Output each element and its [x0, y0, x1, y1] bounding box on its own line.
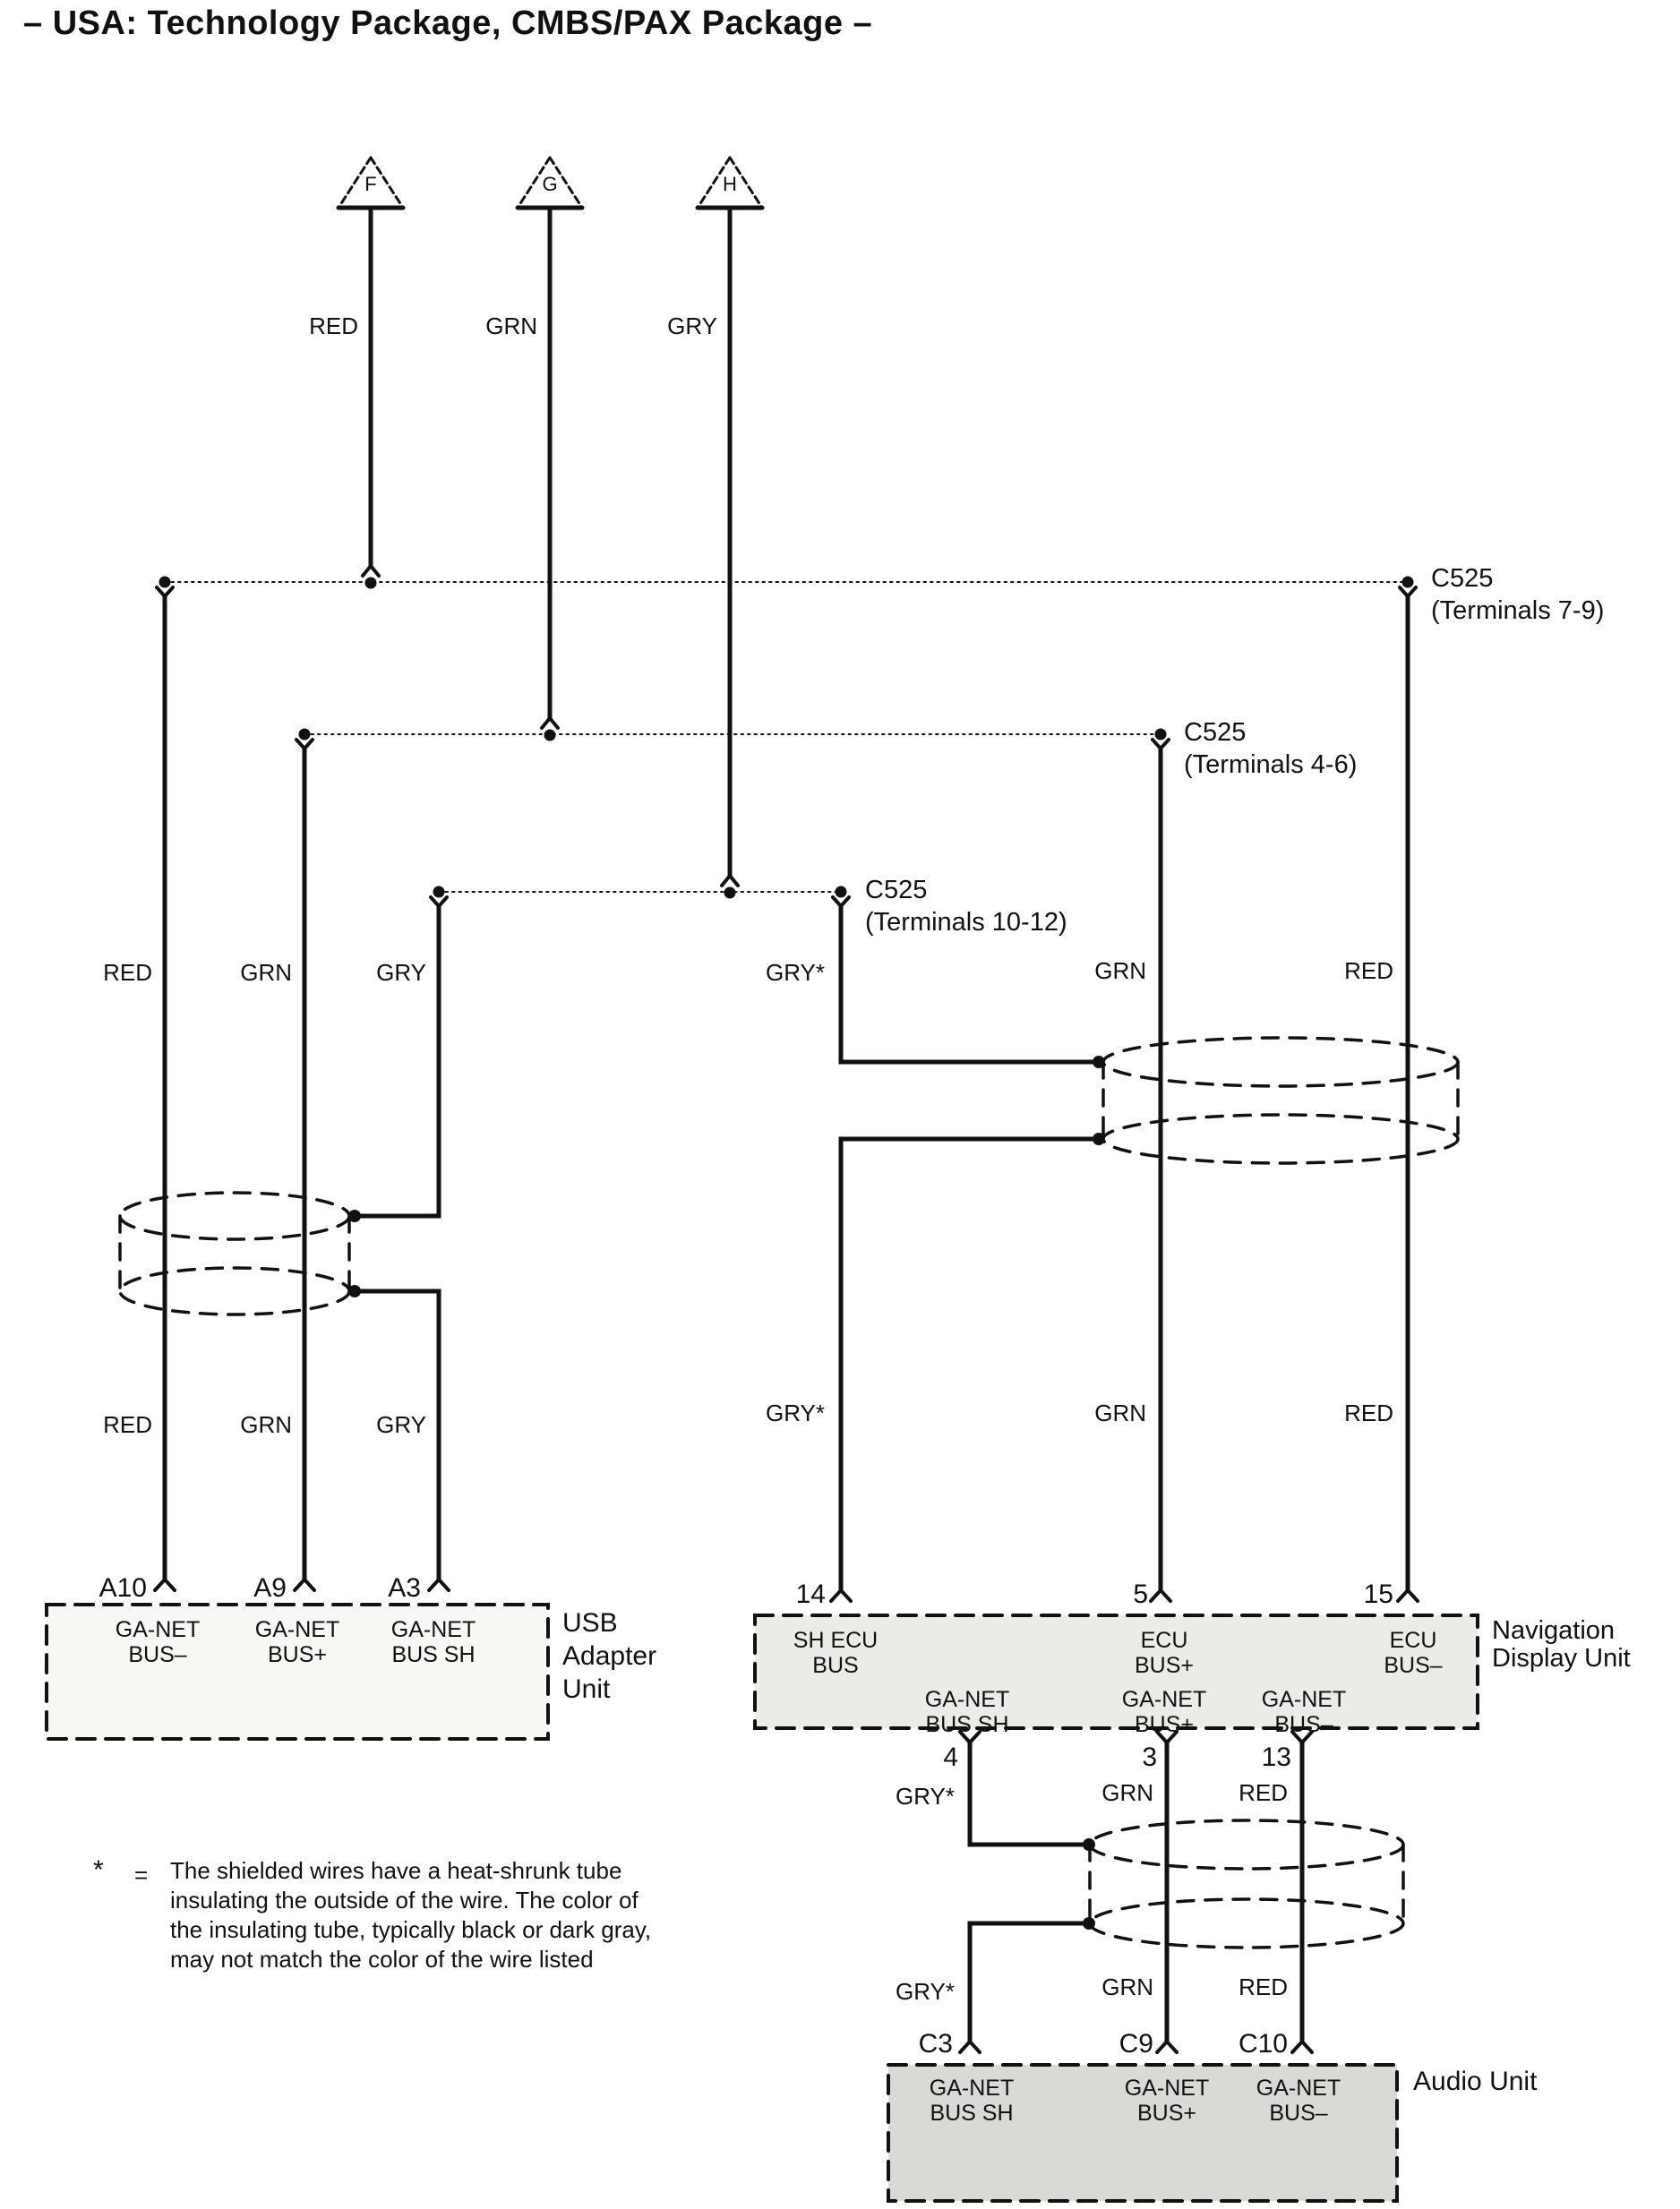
pin-function-line: GA-NET	[335, 1617, 532, 1642]
unit-name-line: Navigation	[1492, 1617, 1631, 1645]
footnote-text: The shielded wires have a heat-shrunk tu…	[170, 1856, 651, 1974]
wire-color-red-mid-1: RED	[1153, 1780, 1288, 1806]
wire-gry-star-right-shielded	[831, 897, 1096, 1601]
wire-color-gry-star-right-1: GRY*	[690, 960, 825, 986]
unit-name-line: Display Unit	[1492, 1645, 1631, 1673]
wire-color-gry-star-mid-2: GRY*	[820, 1979, 955, 2005]
footnote-equals: =	[134, 1862, 148, 1888]
connector-terminals: (Terminals 7-9)	[1431, 595, 1604, 627]
usb-pin-function-bus-sh: GA-NET BUS SH	[335, 1617, 532, 1667]
pin-function-line: ECU	[1066, 1628, 1263, 1653]
wire-color-top-red: RED	[224, 313, 358, 339]
wire-color-gry-left-2: GRY	[292, 1412, 426, 1438]
wire-color-grn-right-2: GRN	[1012, 1400, 1146, 1426]
nav-pin-function-ganet-bus-minus: GA-NET BUS–	[1205, 1687, 1402, 1737]
unit-name-line: Unit	[562, 1673, 656, 1706]
wire-color-grn-left-2: GRN	[158, 1412, 292, 1438]
pin-function-line: GA-NET	[1205, 1687, 1402, 1712]
pin-label-c9: C9	[1019, 2029, 1153, 2059]
nav-pin-function-ganet-bus-sh: GA-NET BUS SH	[869, 1687, 1066, 1737]
wire-red-right	[1398, 587, 1418, 1601]
wire-color-red-right-1: RED	[1259, 958, 1393, 984]
connector-name: C525	[1431, 562, 1604, 595]
triangle-label-g: G	[532, 174, 568, 195]
wire-color-top-grn: GRN	[403, 313, 537, 339]
connector-name: C525	[1184, 716, 1357, 749]
footnote-symbol: *	[93, 1855, 104, 1885]
page-title: – USA: Technology Package, CMBS/PAX Pack…	[23, 5, 872, 43]
wire-color-gry-star-right-2: GRY*	[690, 1400, 825, 1426]
shield-upper-right	[1103, 1038, 1458, 1163]
footnote-line: insulating the outside of the wire. The …	[170, 1886, 651, 1915]
wire-red-left	[155, 587, 175, 1590]
audio-pin-function-bus-minus: GA-NET BUS–	[1200, 2076, 1397, 2126]
wire-red-lower	[1292, 1732, 1312, 2052]
nav-pin-function-ecu-bus-plus: ECU BUS+	[1066, 1628, 1263, 1678]
nav-pin-function-ecu-bus-minus: ECU BUS–	[1315, 1628, 1512, 1678]
connector-name: C525	[865, 874, 1067, 906]
pin-function-line: BUS+	[1066, 1653, 1263, 1678]
wire-color-grn-mid-2: GRN	[1019, 1974, 1153, 2000]
footnote-line: the insulating tube, typically black or …	[170, 1915, 651, 1945]
nav-display-unit-name: Navigation Display Unit	[1492, 1617, 1631, 1673]
pin-label-4: 4	[824, 1742, 958, 1772]
pin-label-a10: A10	[13, 1573, 147, 1603]
pin-label-a9: A9	[152, 1573, 287, 1603]
pin-label-14: 14	[691, 1580, 826, 1609]
wire-color-grn-mid-1: GRN	[1019, 1780, 1153, 1806]
pin-label-c3: C3	[819, 2029, 953, 2059]
wire-f-red	[363, 208, 379, 576]
nav-pin-function-sh-ecu-bus: SH ECU BUS	[737, 1628, 934, 1678]
wire-color-red-left-2: RED	[18, 1412, 152, 1438]
pin-function-line: GA-NET	[1200, 2076, 1397, 2101]
wire-grn-right	[1151, 740, 1170, 1601]
pin-function-line: BUS SH	[869, 1712, 1066, 1737]
shield-lower	[1090, 1820, 1403, 1948]
audio-pin-function-bus-sh: GA-NET BUS SH	[873, 2076, 1070, 2126]
wire-color-red-mid-2: RED	[1153, 1974, 1288, 2000]
wire-h-gry	[722, 208, 738, 886]
pin-label-a3: A3	[287, 1573, 421, 1603]
wire-color-red-left-1: RED	[18, 960, 152, 986]
wire-color-grn-left-1: GRN	[158, 960, 292, 986]
unit-name-line: Adapter	[562, 1640, 656, 1673]
pin-function-line: BUS	[737, 1653, 934, 1678]
pin-label-13: 13	[1157, 1742, 1291, 1772]
wire-gry-left-shielded	[355, 897, 449, 1590]
connector-terminals: (Terminals 10-12)	[865, 906, 1067, 938]
triangle-label-h: H	[712, 174, 748, 195]
pin-function-line: SH ECU	[737, 1628, 934, 1653]
pin-function-line: ECU	[1315, 1628, 1512, 1653]
connector-label-c525-7-9: C525 (Terminals 7-9)	[1431, 562, 1604, 627]
pin-function-line: GA-NET	[869, 1687, 1066, 1712]
pin-function-line: GA-NET	[873, 2076, 1070, 2101]
wire-grn-left	[295, 740, 314, 1590]
shield-left	[120, 1193, 349, 1314]
pin-function-line: BUS SH	[873, 2101, 1070, 2126]
pin-label-3: 3	[1023, 1742, 1157, 1772]
footnote-line: The shielded wires have a heat-shrunk tu…	[170, 1856, 651, 1886]
pin-function-line: BUS SH	[335, 1642, 532, 1667]
unit-name-line: USB	[562, 1606, 656, 1640]
pin-label-5: 5	[1014, 1580, 1148, 1609]
pin-function-line: BUS–	[1315, 1653, 1512, 1678]
connector-terminals: (Terminals 4-6)	[1184, 749, 1357, 781]
wire-color-grn-right-1: GRN	[1012, 958, 1146, 984]
wire-color-top-gry: GRY	[583, 313, 717, 339]
pin-label-15: 15	[1259, 1580, 1393, 1609]
wiring-diagram-page: { "title": "– USA: Technology Package, C…	[0, 0, 1680, 2209]
wire-color-red-right-2: RED	[1259, 1400, 1393, 1426]
pin-label-c10: C10	[1153, 2029, 1288, 2059]
wire-g-grn	[542, 208, 558, 728]
pin-function-line: BUS–	[1200, 2101, 1397, 2126]
pin-function-line: BUS–	[1205, 1712, 1402, 1737]
wire-color-gry-star-mid-1: GRY*	[820, 1784, 955, 1810]
audio-unit-name: Audio Unit	[1413, 2065, 1537, 2098]
usb-adapter-unit-name: USB Adapter Unit	[562, 1606, 656, 1706]
connector-label-c525-4-6: C525 (Terminals 4-6)	[1184, 716, 1357, 781]
triangle-label-f: F	[353, 174, 389, 195]
connector-label-c525-10-12: C525 (Terminals 10-12)	[865, 874, 1067, 938]
wire-color-gry-left-1: GRY	[292, 960, 426, 986]
footnote-line: may not match the color of the wire list…	[170, 1945, 651, 1974]
